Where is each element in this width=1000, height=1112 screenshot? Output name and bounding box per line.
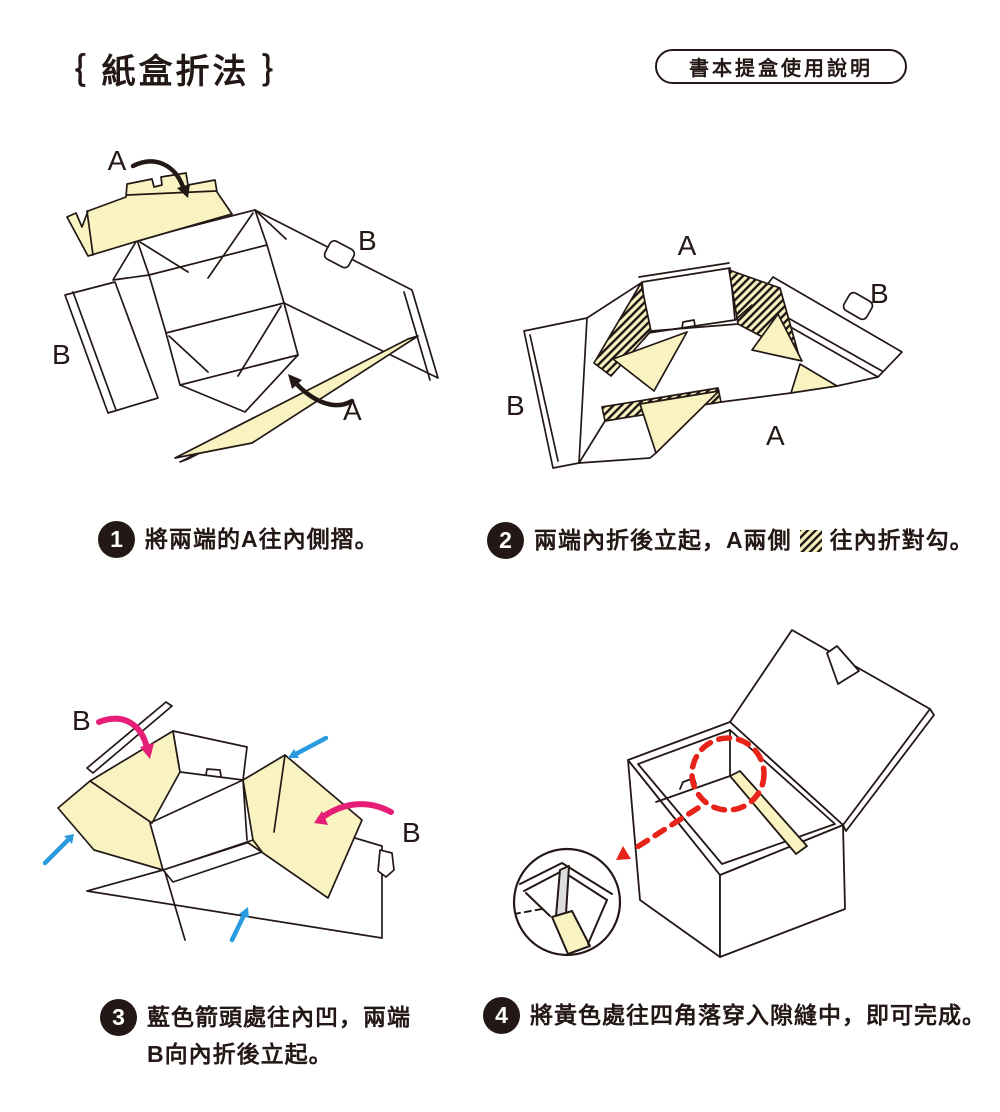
label-b-right: B xyxy=(402,817,421,848)
step4-text: 將黃色處往四角落穿入隙縫中，即可完成。 xyxy=(530,997,986,1034)
step1-caption: 1 將兩端的A往內側摺。 xyxy=(98,521,379,558)
instruction-sheet: ｛ 紙盒折法 ｝ 書本提盒使用說明 xyxy=(0,0,1000,1112)
title-badge: 書本提盒使用說明 xyxy=(655,49,907,84)
back-wall xyxy=(173,731,247,780)
step4-caption: 4 將黃色處往四角落穿入隙縫中，即可完成。 xyxy=(483,997,986,1034)
label-b-left: B xyxy=(72,705,91,736)
hatched-swatch-icon xyxy=(800,530,822,552)
label-b-right: B xyxy=(870,278,889,309)
step3-caption: 3 藍色箭頭處往內凹，兩端 B向內折後立起。 xyxy=(100,999,411,1073)
step4-number-badge: 4 xyxy=(483,997,520,1034)
label-a-bottom: A xyxy=(766,420,785,451)
step1-text: 將兩端的A往內側摺。 xyxy=(145,521,379,558)
step3-text-line1: 藍色箭頭處往內凹，兩端 xyxy=(147,999,411,1036)
back-wall xyxy=(639,263,735,333)
label-b-left: B xyxy=(506,390,525,421)
step2-text-after: 往內折對勾。 xyxy=(830,522,974,559)
diagram-step2-folded-tray: A B B A xyxy=(490,225,930,475)
diagram-step1-unfolded-template: A B B A xyxy=(40,140,460,480)
step2-text-before: 兩端內折後立起，A兩側 xyxy=(534,522,792,559)
label-b-right: B xyxy=(358,225,377,256)
label-a-top: A xyxy=(678,230,697,261)
diagram-step3-standing-box: B B xyxy=(30,680,460,975)
left-wing-panel xyxy=(65,282,158,413)
step3-text-line2: B向內折後立起。 xyxy=(147,1036,411,1073)
inset-detail-circle xyxy=(514,849,620,955)
page-title: ｛ 紙盒折法 ｝ xyxy=(52,44,299,93)
label-b-left: B xyxy=(52,339,71,370)
step2-number-badge: 2 xyxy=(487,522,524,559)
step3-number-badge: 3 xyxy=(100,999,137,1036)
label-a-top: A xyxy=(108,145,127,176)
diagram-step4-finished-box xyxy=(490,612,940,967)
left-wing-panel xyxy=(524,318,587,468)
step2-caption: 2 兩端內折後立起，A兩側 往內折對勾。 xyxy=(487,522,974,559)
step1-number-badge: 1 xyxy=(98,521,135,558)
label-a-bottom: A xyxy=(343,395,362,426)
